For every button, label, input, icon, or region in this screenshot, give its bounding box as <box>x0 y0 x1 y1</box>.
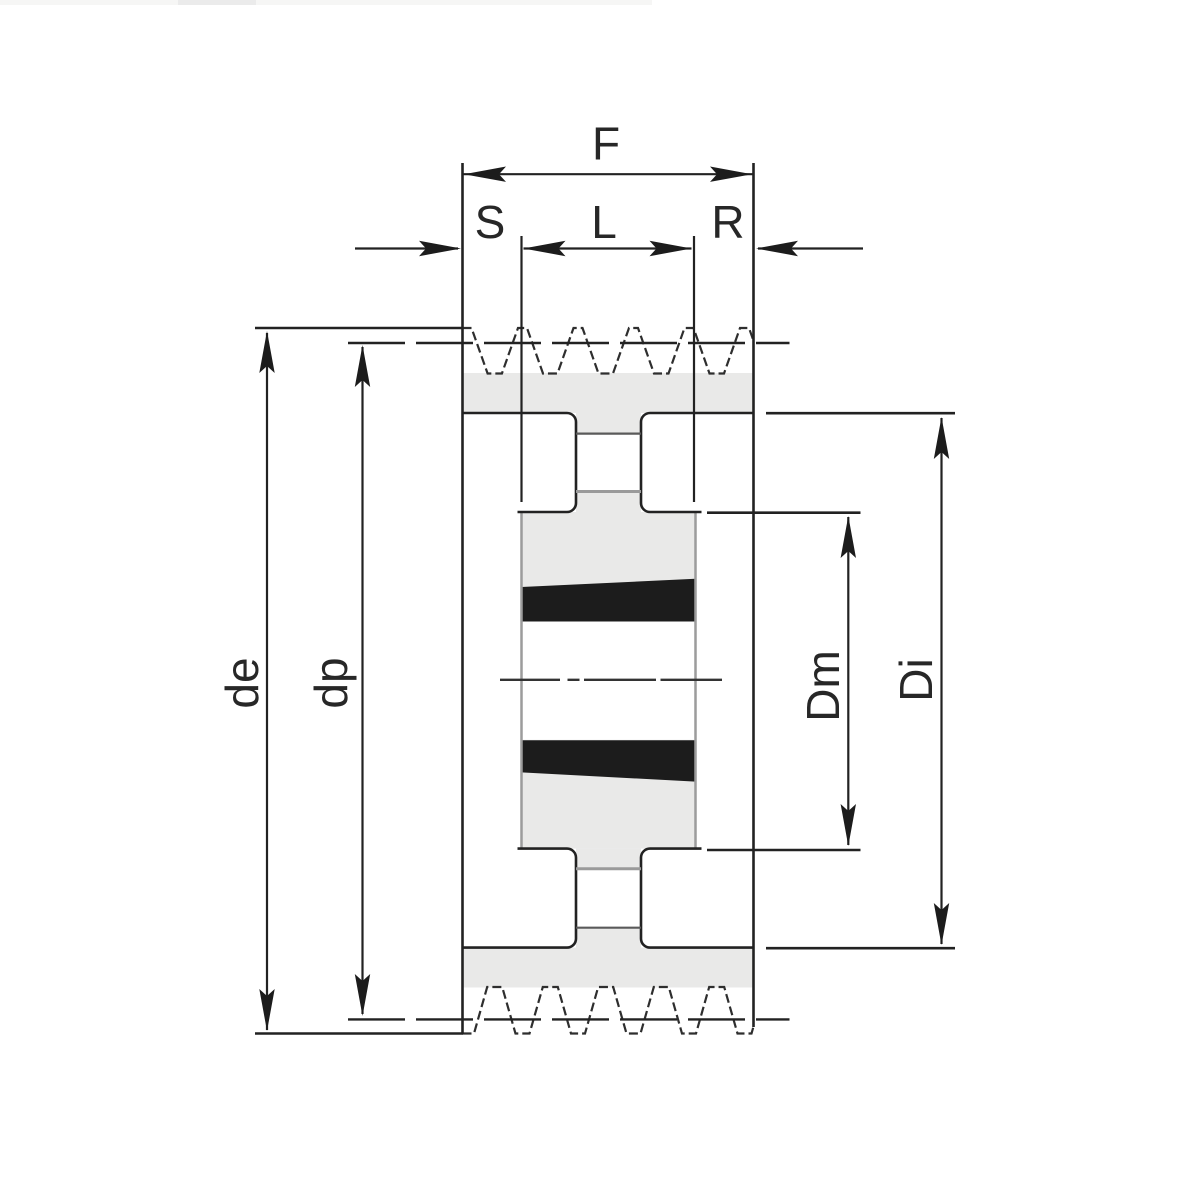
svg-text:dp: dp <box>305 657 357 708</box>
svg-text:Dm: Dm <box>797 650 849 722</box>
svg-text:Di: Di <box>890 658 942 701</box>
svg-text:R: R <box>711 196 744 248</box>
svg-text:de: de <box>216 657 268 708</box>
svg-text:F: F <box>592 118 620 170</box>
svg-text:S: S <box>475 196 506 248</box>
svg-text:L: L <box>591 196 617 248</box>
